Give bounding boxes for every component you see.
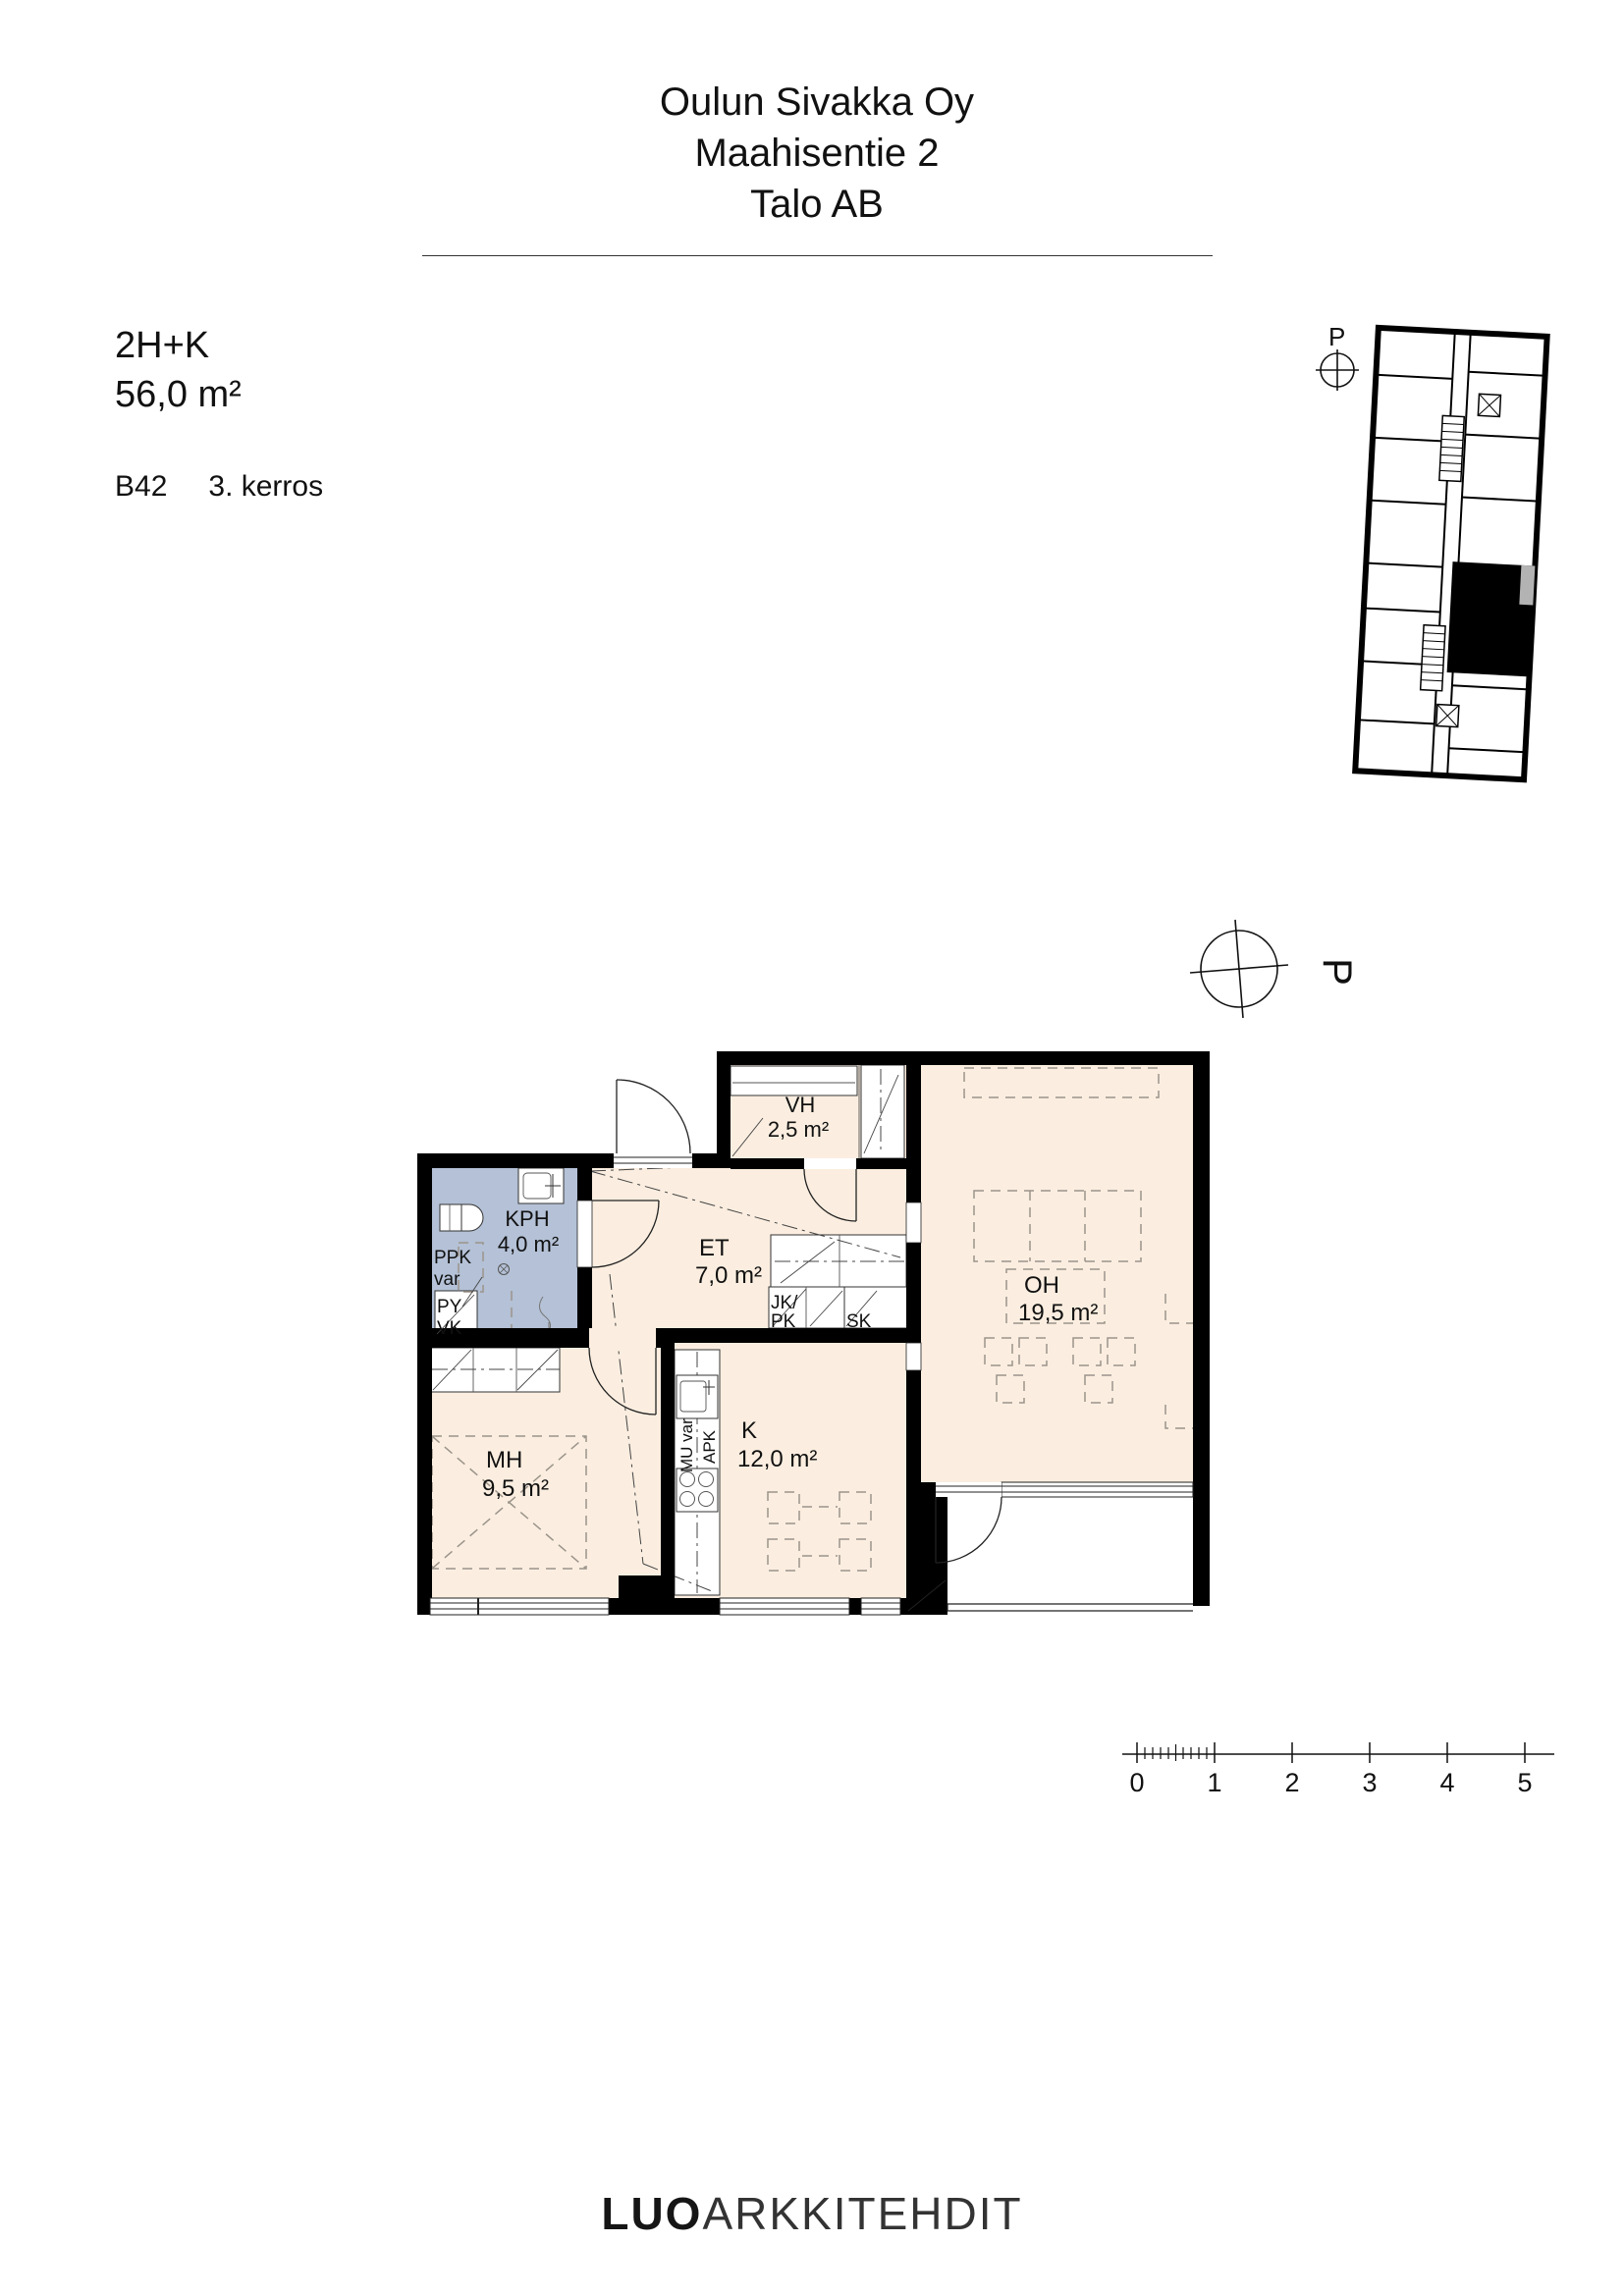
- label-sk: SK: [846, 1311, 872, 1332]
- label-ppk: PPK: [434, 1248, 471, 1268]
- title-divider: [422, 255, 1213, 256]
- room-label-kph: KPH: [505, 1206, 549, 1231]
- room-label-mh: MH: [486, 1447, 522, 1473]
- key-plan-elevator-bottom: [1436, 705, 1459, 727]
- apartment-area: 56,0 m²: [115, 370, 323, 419]
- oh-window: [1001, 1482, 1193, 1497]
- document-title: Oulun Sivakka Oy Maahisentie 2 Talo AB: [419, 77, 1215, 230]
- title-company: Oulun Sivakka Oy: [419, 77, 1215, 128]
- vh-door-opening: [804, 1158, 856, 1169]
- label-vk: VK: [437, 1318, 462, 1339]
- svg-text:5: 5: [1517, 1768, 1532, 1797]
- room-label-et: ET: [699, 1235, 730, 1261]
- mh-door-opening: [589, 1328, 656, 1348]
- building-key-plan: P: [1311, 316, 1576, 822]
- room-area-mh: 9,5 m²: [482, 1475, 549, 1502]
- label-ppk-var: var: [434, 1269, 460, 1290]
- svg-text:0: 0: [1129, 1768, 1144, 1797]
- apartment-type: 2H+K: [115, 321, 323, 370]
- logo-light-part: ARKKITEHDIT: [702, 2188, 1022, 2239]
- balcony-door-opening: [936, 1482, 1001, 1497]
- apartment-floor: 3. kerros: [208, 470, 323, 503]
- north-label: P: [1315, 958, 1361, 986]
- scale-bar: 0 1 2 3 4 5: [1114, 1733, 1576, 1801]
- compass-icon: [1190, 920, 1288, 1018]
- key-plan-balcony-marker: [1519, 565, 1535, 606]
- vh-shelf: [731, 1066, 857, 1095]
- toilet-tank: [440, 1204, 461, 1231]
- svg-text:1: 1: [1207, 1768, 1221, 1797]
- kph-door-opening: [577, 1201, 592, 1267]
- room-area-oh: 19,5 m²: [1018, 1300, 1098, 1326]
- mh-window: [430, 1598, 609, 1615]
- north-arrow: P: [1178, 911, 1384, 1039]
- floor-plan: VH 2,5 m² KPH 4,0 m² ET 7,0 m² OH 19,5 m…: [417, 1043, 1232, 1632]
- logo-bold-part: LUO: [601, 2188, 702, 2239]
- room-area-kph: 4,0 m²: [498, 1232, 559, 1256]
- room-area-k: 12,0 m²: [737, 1446, 817, 1472]
- label-py: PY: [437, 1297, 462, 1317]
- scale-tick-labels: 0 1 2 3 4 5: [1129, 1768, 1532, 1797]
- svg-text:4: 4: [1439, 1768, 1454, 1797]
- architect-logo: LUOARKKITEHDIT: [0, 2187, 1624, 2240]
- label-jk: JK/: [771, 1293, 798, 1313]
- room-area-vh: 2,5 m²: [768, 1117, 829, 1142]
- room-area-et: 7,0 m²: [695, 1262, 762, 1289]
- label-pk: PK: [771, 1311, 796, 1332]
- key-plan-stairs-bottom: [1421, 625, 1445, 691]
- label-apk: APK: [700, 1429, 719, 1464]
- entry-door-swing: [617, 1080, 690, 1153]
- room-label-k: K: [741, 1417, 757, 1444]
- title-address: Maahisentie 2: [419, 128, 1215, 179]
- k-oh-passage: [906, 1343, 921, 1370]
- room-label-oh: OH: [1024, 1272, 1059, 1299]
- apartment-unit: B42: [115, 470, 167, 503]
- balcony-railing: [947, 1604, 1193, 1611]
- title-building: Talo AB: [419, 179, 1215, 230]
- entry-door-opening: [614, 1153, 692, 1168]
- apartment-unit-row: B423. kerros: [115, 462, 323, 511]
- key-plan-elevator-top: [1478, 394, 1500, 416]
- key-plan-north-icon: [1316, 349, 1359, 391]
- room-label-vh: VH: [785, 1093, 816, 1117]
- et-oh-passage: [906, 1202, 921, 1243]
- svg-text:2: 2: [1284, 1768, 1299, 1797]
- key-plan-north-label: P: [1328, 322, 1345, 351]
- key-plan-building: [1355, 328, 1546, 779]
- label-mu-var: MU var: [677, 1418, 696, 1472]
- floor-plan-document: Oulun Sivakka Oy Maahisentie 2 Talo AB 2…: [0, 0, 1624, 2296]
- svg-text:3: 3: [1362, 1768, 1377, 1797]
- key-plan-stairs-top: [1439, 415, 1464, 481]
- k-window: [720, 1598, 900, 1615]
- apartment-info: 2H+K 56,0 m² B423. kerros: [115, 321, 323, 511]
- toilet-bowl: [461, 1204, 483, 1231]
